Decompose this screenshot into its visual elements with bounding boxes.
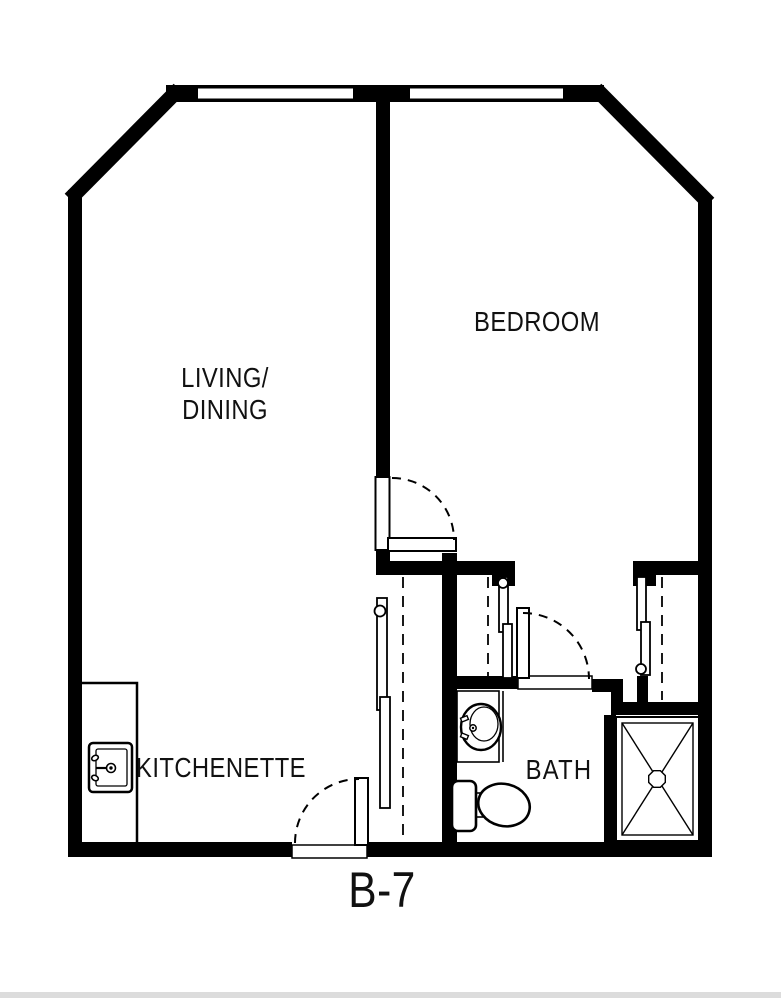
kitchenette-area [82,683,137,842]
shower-drain [649,771,666,788]
kitchen-sink [89,743,132,792]
door-handle [375,606,386,617]
bath-door [517,608,592,689]
bath-vanity [457,691,503,762]
room-label-kitchenette: KITCHENETTE [136,752,306,784]
sliding-door-panel [503,624,512,678]
right-wall [698,196,712,857]
faucet-dot [109,766,112,769]
entry-door-swing-arc [295,779,359,843]
divider-wall [376,99,390,478]
bedroom-closet-left [488,577,512,688]
left-wall [68,190,82,857]
floor-plan-b7: LIVING/ DINING BEDROOM KITCHENETTE BATH … [0,0,781,998]
window-top-left [198,89,353,99]
bedroom-door-swing-arc [392,478,454,540]
room-label-living-dining: LIVING/ DINING [181,362,269,426]
shower-top-wall [611,702,700,715]
door-handle [636,664,646,674]
bath-door-swing-arc [523,613,589,679]
bottom-wall-left [68,842,292,857]
bottom-wall-right [367,842,712,857]
room-label-bath: BATH [526,754,593,786]
scan-edge [0,992,781,998]
unit-label: B-7 [348,863,415,917]
bedroom-door [376,477,457,551]
entry-door-leaf [355,778,368,845]
toilet-tank [452,781,476,831]
window-top-right [410,89,563,99]
shower [616,717,699,841]
living-label-line1: LIVING/ [181,362,269,394]
chamfer-wall-right [596,89,709,203]
door-handle [498,578,508,588]
living-closet [375,577,404,841]
toilet-bowl [474,778,535,831]
chamfer-wall-left [70,89,179,199]
shower-left-wall [604,715,616,843]
floor-plan-drawing [0,0,781,998]
sliding-door-panel [380,697,390,808]
faucet-dot [472,727,474,729]
living-label-line2: DINING [181,394,269,426]
bath-door-leaf [517,608,529,678]
entry-door-threshold [292,845,367,858]
entry-door [292,778,368,858]
bath-sink [461,704,501,750]
room-label-bedroom: BEDROOM [474,306,600,338]
toilet [452,778,534,831]
bedroom-door-leaf [388,538,456,551]
